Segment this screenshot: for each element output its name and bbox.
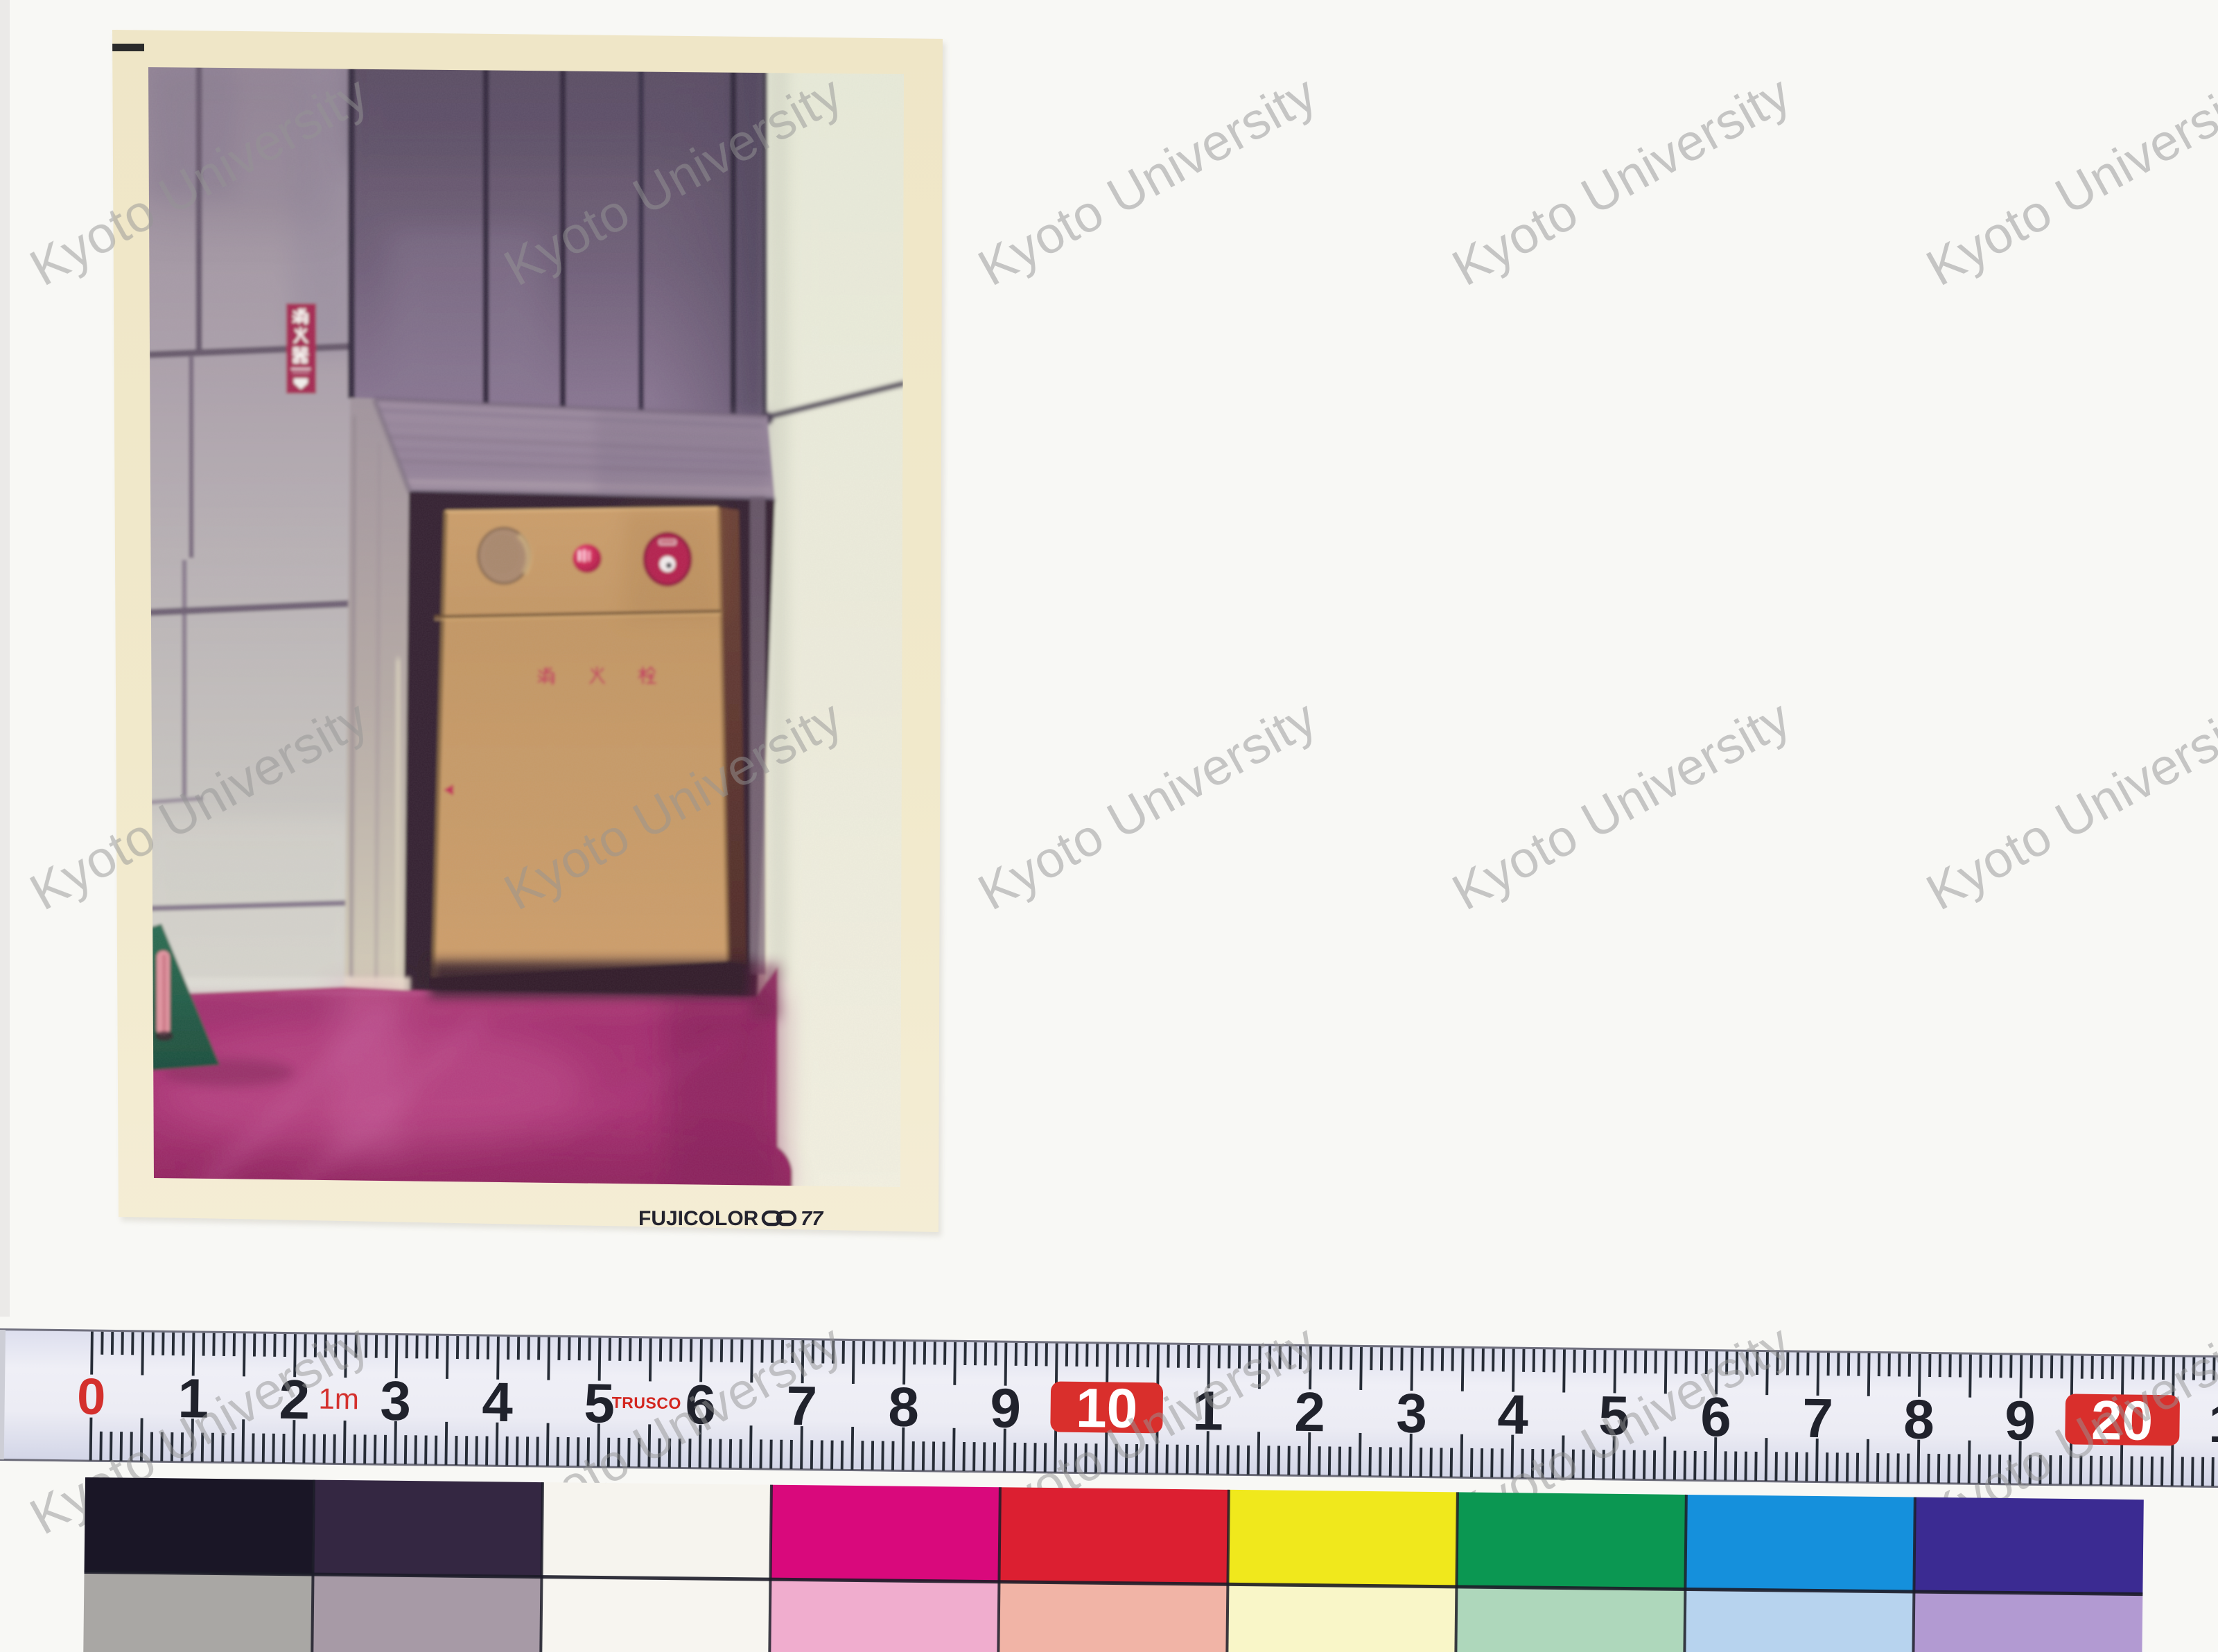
svg-text:0: 0 [77,1367,106,1425]
svg-text:5: 5 [584,1372,615,1434]
svg-text:FUJICOLOR: FUJICOLOR [638,1207,759,1230]
svg-text:3: 3 [1396,1382,1428,1445]
svg-text:8: 8 [1903,1389,1935,1451]
svg-text:8: 8 [888,1376,920,1439]
svg-text:3: 3 [380,1370,412,1432]
svg-text:4: 4 [482,1371,514,1433]
svg-text:7: 7 [1802,1387,1834,1450]
svg-text:77: 77 [801,1208,824,1230]
svg-text:1: 1 [2208,1392,2218,1455]
svg-text:2: 2 [1294,1381,1326,1443]
svg-text:4: 4 [1497,1383,1529,1445]
svg-text:9: 9 [990,1377,1022,1439]
